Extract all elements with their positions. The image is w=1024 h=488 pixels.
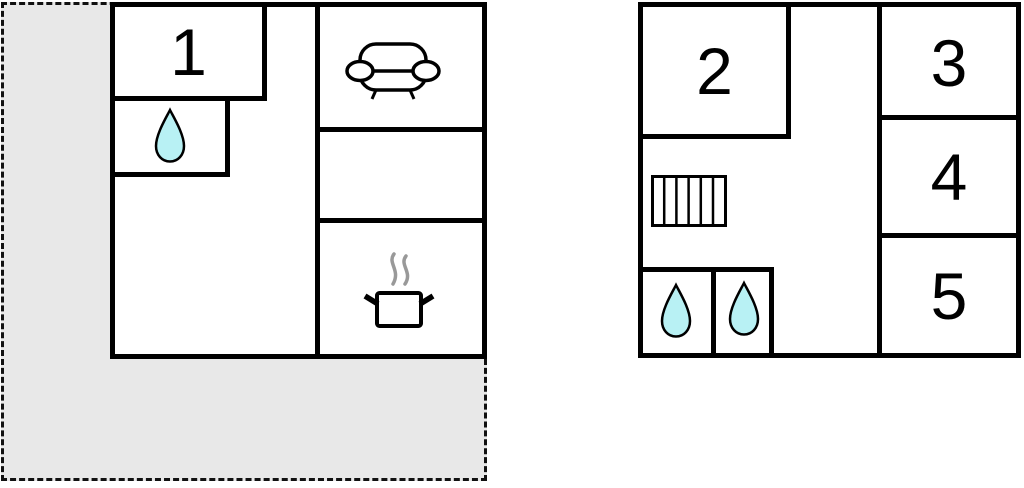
wall-segment	[643, 267, 774, 272]
wall-segment	[769, 267, 774, 353]
room-3-label: 3	[882, 7, 1016, 119]
wall-segment	[315, 127, 482, 132]
room-1-label: 1	[115, 7, 262, 96]
water-drop-icon	[152, 107, 188, 165]
floor-plan-building-2: 2 3 4 5	[638, 2, 1021, 358]
wall-segment	[786, 7, 791, 139]
wall-segment	[115, 96, 267, 101]
wall-segment	[315, 7, 320, 354]
water-drop-shape	[156, 110, 184, 162]
wall-segment	[315, 218, 482, 223]
cooking-pot-icon	[361, 250, 437, 334]
room-5-label: 5	[882, 238, 1016, 353]
room-2-label: 2	[643, 7, 786, 134]
room-4-label: 4	[882, 120, 1016, 233]
stairs-icon	[651, 175, 727, 227]
sofa-icon	[345, 40, 441, 100]
water-drop-icon	[658, 282, 694, 340]
wall-segment	[262, 7, 267, 101]
floor-plan-canvas: 1 2 3	[0, 0, 1024, 488]
wall-segment	[225, 96, 230, 177]
wall-segment	[711, 267, 716, 353]
wall-segment	[643, 134, 791, 139]
water-drop-icon	[726, 280, 762, 338]
floor-plan-building-1: 1	[110, 2, 487, 359]
wall-segment	[115, 172, 230, 177]
